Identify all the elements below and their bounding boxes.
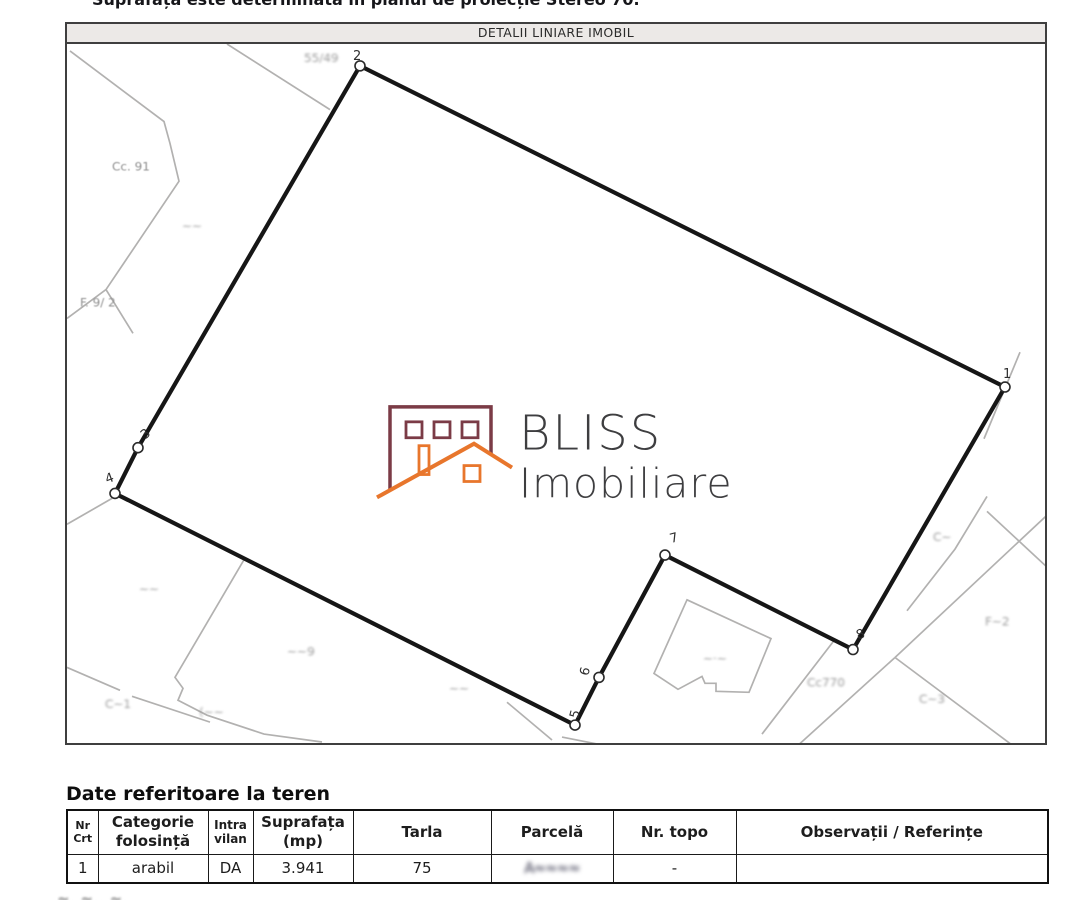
parcel-label: Cc. 91 [112, 159, 150, 173]
vertex-markers [110, 61, 1010, 730]
col-header-categorie: Categoriefolosință [98, 810, 208, 854]
window-icon [462, 422, 478, 438]
parcel-label: F~2 [985, 615, 1010, 629]
sketch-title-bar: DETALII LINIARE IMOBIL [67, 24, 1045, 44]
col-header-tarla: Tarla [353, 810, 491, 854]
parcel-label: C~1 [105, 697, 131, 711]
parcel-label: ~·~ [703, 651, 727, 665]
parcel-label: 55/49 [304, 51, 339, 65]
parcel-label: ~~9 [287, 645, 315, 659]
parcel-label: C~ [933, 530, 951, 544]
cell-categorie: arabil [98, 854, 208, 883]
vertex-labels: 1 2 3 4 5 6 7 8 [103, 49, 1011, 720]
cell-parcela: A≈≈≈≈ [491, 854, 613, 883]
parcel-label: (~~ [199, 705, 224, 719]
parcel-label: F. 9/ 2 [80, 296, 116, 310]
cell-nr-topo: - [613, 854, 736, 883]
parcel-label: ~~ [139, 582, 159, 596]
parcel-label: C~3 [919, 692, 945, 706]
building-outline [654, 600, 771, 692]
vertex-label-1: 1 [1003, 367, 1011, 382]
col-header-observatii: Observații / Referințe [736, 810, 1048, 854]
bliss-imobiliare-watermark: BLISS Imobiliare [377, 407, 733, 508]
col-header-suprafata: Suprafața(mp) [253, 810, 353, 854]
vertex-marker-8 [848, 645, 858, 655]
house-icon [390, 407, 491, 490]
vertex-label-4: 4 [103, 470, 116, 487]
cell-tarla: 75 [353, 854, 491, 883]
col-header-nr-topo: Nr. topo [613, 810, 736, 854]
neighbor-parcel-lines [67, 44, 1045, 743]
redacted-parcela-value: A≈≈≈≈ [524, 859, 580, 877]
vertex-marker-4 [110, 488, 120, 498]
vertex-label-7: 7 [668, 530, 680, 547]
projection-note-text: Suprafața este determinată în planul de … [92, 0, 792, 9]
table-header-row: NrCrt Categoriefolosință Intravilan Supr… [67, 810, 1048, 854]
cadastral-sketch: 55/49 Cc. 91 ~~ F. 9/ 2 ~~ ~~9 C~1 (~~ ~… [67, 44, 1045, 743]
cell-observatii [736, 854, 1048, 883]
cell-nr-crt: 1 [67, 854, 98, 883]
land-table-heading: Date referitoare la teren [66, 783, 330, 805]
col-header-intravilan: Intravilan [208, 810, 253, 854]
vertex-marker-5 [570, 720, 580, 730]
watermark-line1: BLISS [519, 407, 662, 462]
parcel-label: ~~ [182, 219, 202, 233]
window-icon [434, 422, 450, 438]
vertex-marker-7 [660, 550, 670, 560]
clipped-text-fragment: ≈. ≈.. ≈. [57, 891, 317, 900]
vertex-marker-3 [133, 443, 143, 453]
table-row: 1 arabil DA 3.941 75 A≈≈≈≈ - [67, 854, 1048, 883]
col-header-parcela: Parcelă [491, 810, 613, 854]
window-icon [406, 422, 422, 438]
vertex-label-2: 2 [353, 49, 361, 64]
vertex-label-6: 6 [577, 666, 594, 678]
cell-intravilan: DA [208, 854, 253, 883]
land-table: NrCrt Categoriefolosință Intravilan Supr… [66, 809, 1049, 884]
col-header-nr-crt: NrCrt [67, 810, 98, 854]
parcel-label: ~~ [449, 681, 469, 695]
vertex-marker-6 [594, 672, 604, 682]
clipped-projection-note: Suprafața este determinată în planul de … [92, 0, 792, 9]
vertex-marker-1 [1000, 382, 1010, 392]
parcel-boundary [115, 66, 1005, 725]
roof-window-icon [464, 466, 480, 482]
parcel-label: Cc770 [807, 675, 845, 689]
watermark-line2: Imobiliare [519, 460, 733, 508]
cadastral-sketch-frame: DETALII LINIARE IMOBIL 55/49 Cc. 91 [65, 22, 1047, 745]
cell-suprafata: 3.941 [253, 854, 353, 883]
